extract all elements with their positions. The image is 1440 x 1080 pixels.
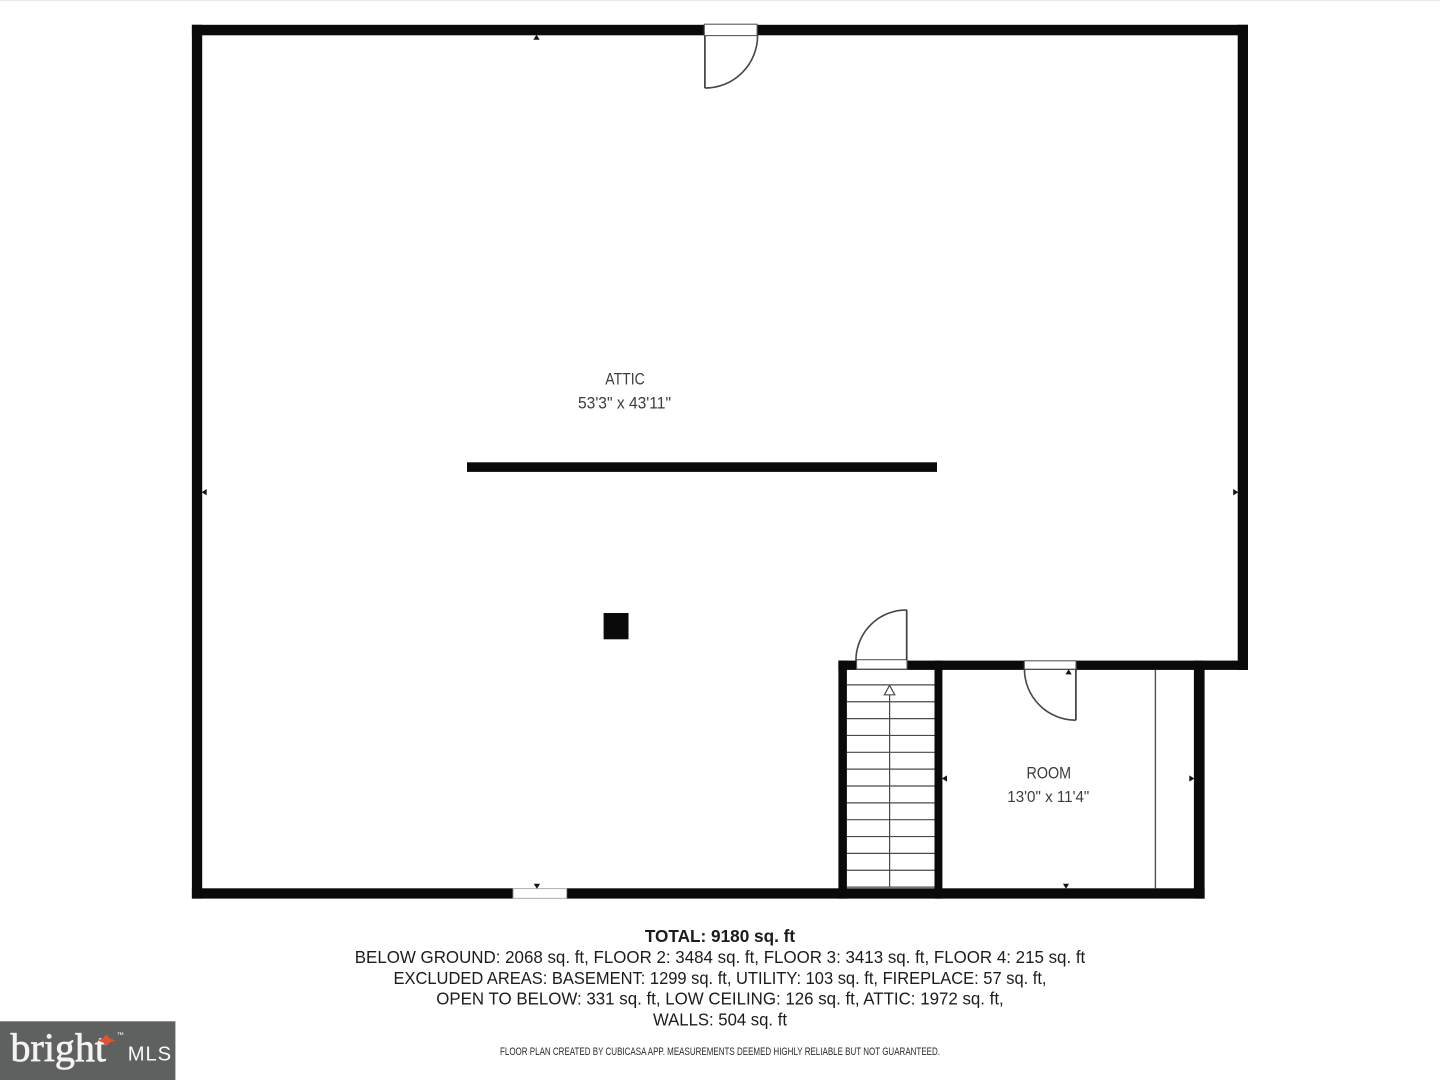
svg-text:OPEN TO BELOW: 331 sq. ft, LOW: OPEN TO BELOW: 331 sq. ft, LOW CEILING: … [436, 989, 1004, 1009]
svg-text:MLS: MLS [128, 1044, 172, 1066]
svg-text:bright: bright [11, 1025, 107, 1070]
svg-text:EXCLUDED AREAS: BASEMENT: 1299: EXCLUDED AREAS: BASEMENT: 1299 sq. ft, U… [394, 968, 1047, 988]
svg-text:ROOM: ROOM [1027, 765, 1072, 783]
svg-text:ATTIC: ATTIC [605, 370, 645, 389]
svg-text:53'3" x 43'11": 53'3" x 43'11" [578, 394, 671, 413]
svg-text:TOTAL: 9180 sq. ft: TOTAL: 9180 sq. ft [645, 926, 796, 946]
svg-text:FLOOR PLAN CREATED BY CUBICASA: FLOOR PLAN CREATED BY CUBICASA APP. MEAS… [500, 1046, 940, 1058]
svg-text:™: ™ [117, 1032, 124, 1039]
svg-text:13'0" x 11'4": 13'0" x 11'4" [1007, 789, 1089, 806]
svg-text:WALLS: 504 sq. ft: WALLS: 504 sq. ft [653, 1009, 787, 1029]
svg-text:BELOW GROUND: 2068 sq. ft, FLO: BELOW GROUND: 2068 sq. ft, FLOOR 2: 3484… [355, 947, 1086, 967]
